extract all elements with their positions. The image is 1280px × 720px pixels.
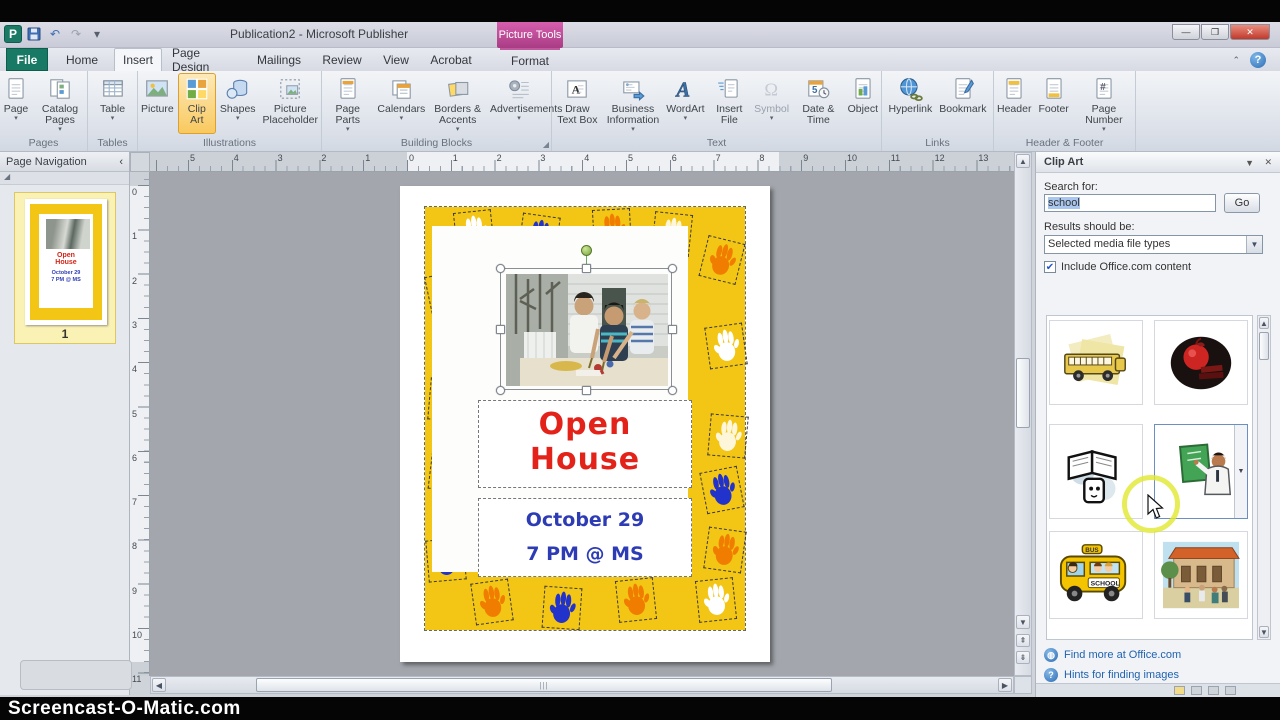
mini-toolbar-icon[interactable] <box>1191 686 1202 695</box>
page1-thumbnail-selected[interactable]: Open House October 29 7 PM @ MS 1 <box>14 192 116 344</box>
ribbon-button-label: Shapes <box>220 104 256 115</box>
mini-toolbar-icon[interactable] <box>1208 686 1219 695</box>
thumbnail-title2: House <box>39 259 93 266</box>
ruler-number: 10 <box>847 153 857 163</box>
date-text-box[interactable]: October 29 7 PM @ MS <box>478 498 692 577</box>
pane-close-icon[interactable]: ✕ <box>1264 157 1272 168</box>
group-label: Building Blocks <box>322 137 551 149</box>
publication-page[interactable]: Open House October 29 7 PM @ MS <box>400 186 770 662</box>
dropdown-arrow-icon: ▾ <box>456 126 460 133</box>
ribbon-button-label: Advertisements <box>490 104 548 115</box>
ribbon-button-catalog-pages[interactable]: Catalog Pages▾ <box>33 73 87 134</box>
title-line1: Open <box>479 407 691 442</box>
title-bar[interactable]: P ↶↷▾ Publication2 - Microsoft Publisher… <box>0 22 1280 48</box>
dropdown-arrow-icon: ▾ <box>14 115 18 122</box>
qat-customize-icon[interactable]: ▾ <box>88 25 106 43</box>
ribbon-button-label: Page Parts <box>325 104 370 126</box>
ruler-number: 9 <box>803 153 808 163</box>
hints-label: Hints for finding images <box>1064 669 1179 681</box>
ribbon-button-shapes[interactable]: Shapes▾ <box>217 73 259 134</box>
ruler-corner-box[interactable] <box>130 152 150 172</box>
dropdown-arrow-icon <box>909 115 911 122</box>
dropdown-arrow-icon: ▾ <box>236 115 240 122</box>
dropdown-arrow-icon <box>1053 115 1055 122</box>
ruler-number: 6 <box>132 453 137 463</box>
thumbnail-border-art: Open House October 29 7 PM @ MS <box>30 204 102 320</box>
thumbnail-date1: October 29 <box>39 270 93 277</box>
apple-books-badge-clipart[interactable] <box>1154 320 1248 405</box>
close-button[interactable]: ✕ <box>1230 24 1270 40</box>
ribbon-button-label: Borders & Accents <box>432 104 483 126</box>
globe-icon: ◍ <box>1044 648 1058 662</box>
hyperlink-icon <box>897 76 923 102</box>
ribbon-button-label: Header <box>997 104 1031 115</box>
selection-handle-se[interactable] <box>668 386 677 395</box>
date-line1: October 29 <box>479 503 691 537</box>
picture-icon <box>144 76 170 102</box>
ruler-number: 1 <box>365 153 370 163</box>
ribbon-button-label: Table <box>100 104 125 115</box>
pane-bottom-strip <box>1036 683 1280 697</box>
ribbon-button-label: Page Number <box>1076 104 1132 126</box>
next-page-icon[interactable]: ⇟ <box>1016 651 1030 664</box>
find-more-label: Find more at Office.com <box>1064 649 1181 661</box>
ribbon-button-label: WordArt <box>666 104 704 115</box>
handprint-stamp <box>707 413 749 458</box>
calendars-icon <box>388 76 414 102</box>
ribbon-button-draw-text-box[interactable]: ADraw Text Box <box>552 73 603 134</box>
handprint-stamp <box>470 579 513 626</box>
search-for-label: Search for: <box>1044 181 1098 193</box>
top-letterbox-bar <box>0 0 1280 22</box>
dropdown-arrow-icon: ▾ <box>111 115 115 122</box>
expand-icon[interactable]: ◢ <box>4 172 10 181</box>
tab-insert[interactable]: Insert <box>114 48 162 71</box>
results-scroll-down-icon[interactable]: ▼ <box>1259 626 1269 638</box>
selection-handle-sw[interactable] <box>496 386 505 395</box>
scroll-left-icon[interactable]: ◀ <box>152 678 166 692</box>
ribbon-button-label: Object <box>848 104 878 115</box>
ruler-number: 3 <box>278 153 283 163</box>
window-controls: — ❐ ✕ <box>1171 24 1270 40</box>
page1-thumbnail[interactable]: Open House October 29 7 PM @ MS <box>25 199 107 325</box>
ribbon-button-bookmark[interactable]: Bookmark <box>936 73 989 123</box>
ribbon-button-label: Draw Text Box <box>555 104 600 126</box>
ribbon-button-table[interactable]: Table▾ <box>97 73 129 123</box>
ruler-number: 10 <box>132 630 142 640</box>
undo-icon[interactable]: ↶ <box>46 25 64 43</box>
dropdown-arrow-icon[interactable]: ▼ <box>1246 236 1262 253</box>
include-office-checkbox-row[interactable]: ✔ Include Office.com content <box>1044 261 1191 273</box>
svg-text:#: # <box>1100 82 1106 93</box>
group-label: Pages <box>0 137 87 149</box>
media-type-dropdown[interactable]: Selected media file types ▼ <box>1044 235 1263 254</box>
date-line2: 7 PM @ MS <box>479 537 691 571</box>
ruler-number: 3 <box>540 153 545 163</box>
ruler-number: 0 <box>409 153 414 163</box>
tab-acrobat[interactable]: Acrobat <box>422 48 480 71</box>
svg-text:BUS: BUS <box>1085 547 1098 554</box>
dropdown-arrow-icon <box>1013 115 1015 122</box>
ruler-number: 2 <box>132 276 137 286</box>
title-text-box[interactable]: Open House <box>478 400 692 488</box>
help-circle-icon: ? <box>1044 668 1058 682</box>
ribbon-button-clip-art[interactable]: Clip Art <box>178 73 216 134</box>
ruler-number: 2 <box>321 153 326 163</box>
tab-page-design[interactable]: Page Design <box>166 48 244 71</box>
ribbon: Page▾Catalog Pages▾PagesTable▾TablesPict… <box>0 71 1280 152</box>
ruler-number: 7 <box>132 497 137 507</box>
ribbon-button-label: Business Information <box>607 104 660 126</box>
selection-handle-w[interactable] <box>496 325 505 334</box>
horizontal-scrollbar[interactable]: ◀ ||| ▶ <box>150 676 1014 694</box>
ruler-number: 8 <box>759 153 764 163</box>
mini-toolbar-icon[interactable] <box>1225 686 1236 695</box>
wordart-icon: A <box>672 76 698 102</box>
minimize-button[interactable]: — <box>1172 24 1200 40</box>
page-navigation-title: Page Navigation <box>6 156 87 168</box>
save-icon[interactable] <box>25 25 43 43</box>
nav-expand-strip[interactable]: ◢ <box>0 172 129 185</box>
dropdown-arrow-icon: ▾ <box>770 115 774 122</box>
school-building-clipart[interactable] <box>1154 531 1248 619</box>
maximize-button[interactable]: ❐ <box>1201 24 1229 40</box>
ribbon-button-object[interactable]: Object <box>845 73 881 134</box>
vertical-scrollbar[interactable]: ▲ ▼ ⇞ ⇟ <box>1014 152 1032 676</box>
ribbon-button-picture-placeholder[interactable]: Picture Placeholder <box>260 73 321 134</box>
group-label: Illustrations <box>138 137 321 149</box>
tab-file[interactable]: File <box>6 48 48 71</box>
previous-page-icon[interactable]: ⇞ <box>1016 634 1030 647</box>
ruler-number: 7 <box>716 153 721 163</box>
placeholder-icon <box>277 76 303 102</box>
footer-icon <box>1041 76 1067 102</box>
ribbon-button-label: Picture <box>141 104 174 115</box>
svg-text:5: 5 <box>812 85 818 96</box>
page-number-label: 1 <box>15 327 115 341</box>
publication-canvas[interactable]: Open House October 29 7 PM @ MS <box>150 172 1014 676</box>
selected-photo-frame[interactable] <box>500 268 672 390</box>
handprint-stamp <box>699 466 744 514</box>
selection-handle-e[interactable] <box>668 325 677 334</box>
thumbnail-inner: Open House October 29 7 PM @ MS <box>39 214 93 308</box>
horizontal-scroll-thumb[interactable]: ||| <box>256 678 832 692</box>
ruler-number: 8 <box>132 541 137 551</box>
tab-review[interactable]: Review <box>314 48 370 71</box>
ruler-number: 1 <box>453 153 458 163</box>
ribbon-button-label: Picture Placeholder <box>263 104 318 126</box>
ribbon-button-calendars[interactable]: Calendars▾ <box>374 73 428 134</box>
mini-toolbar-icon[interactable] <box>1174 686 1185 695</box>
ribbon-button-label: Calendars <box>377 104 425 115</box>
search-value: school <box>1048 197 1080 209</box>
handprint-stamp <box>698 235 745 285</box>
selection-handle-n[interactable] <box>582 264 591 273</box>
ribbon-button-business-information[interactable]: Business Information▾ <box>604 73 663 134</box>
textbox-icon: A <box>564 76 590 102</box>
group-label: Header & Footer <box>994 137 1135 149</box>
dropdown-arrow-icon: ▾ <box>1102 126 1106 133</box>
ribbon-group-tables: Table▾Tables <box>88 71 138 151</box>
picture-tools-contextual-tab: Picture Tools <box>497 22 563 48</box>
dropdown-arrow-icon <box>728 126 730 133</box>
ribbon-button-page-parts[interactable]: Page Parts▾ <box>322 73 373 134</box>
dropdown-arrow-icon: ▾ <box>684 115 688 122</box>
datetime-icon: 5 <box>805 76 831 102</box>
find-more-link[interactable]: ◍ Find more at Office.com <box>1044 648 1181 662</box>
clip-options-arrow-icon[interactable]: ▼ <box>1234 425 1247 518</box>
collapse-pane-icon[interactable]: ‹ <box>119 156 123 168</box>
clipart-icon <box>184 76 210 102</box>
dropdown-arrow-icon <box>156 115 158 122</box>
ribbon-button-label: Hyperlink <box>888 104 932 115</box>
ruler-number: 11 <box>132 674 141 684</box>
dropdown-arrow-icon: ▾ <box>346 126 350 133</box>
redo-icon[interactable]: ↷ <box>67 25 85 43</box>
vertical-ruler[interactable]: 01234567891011 <box>130 172 150 676</box>
ruler-number: 4 <box>132 364 137 374</box>
ruler-number: 5 <box>628 153 633 163</box>
borders-icon <box>445 76 471 102</box>
handprint-stamp <box>615 577 657 623</box>
thumbnail-date2: 7 PM @ MS <box>39 277 93 284</box>
tab-mailings[interactable]: Mailings <box>248 48 310 71</box>
ribbon-button-label: Symbol <box>754 104 789 115</box>
school-bus-side-clipart[interactable] <box>1049 320 1143 405</box>
bizinfo-icon <box>620 76 646 102</box>
quick-access-toolbar: P ↶↷▾ <box>4 25 106 43</box>
media-type-value: Selected media file types <box>1048 238 1170 250</box>
catalog-icon <box>47 76 73 102</box>
title-line2: House <box>479 442 691 477</box>
rotate-handle[interactable] <box>581 245 592 256</box>
dropdown-arrow-icon <box>196 126 198 133</box>
ruler-number: 2 <box>497 153 502 163</box>
svg-text:SCHOOL: SCHOOL <box>1091 581 1120 588</box>
ribbon-button-page-number[interactable]: #Page Number▾ <box>1073 73 1135 134</box>
scroll-right-icon[interactable]: ▶ <box>998 678 1012 692</box>
dropdown-arrow-icon <box>962 115 964 122</box>
ruler-number: 0 <box>132 187 137 197</box>
ribbon-group-text: ADraw Text Box Business Information▾AWor… <box>552 71 882 151</box>
children-painting-photo[interactable] <box>506 274 668 386</box>
ribbon-group-links: Hyperlink Bookmark Links <box>882 71 994 151</box>
watermark-bar: Screencast-O-Matic.com <box>0 697 1280 720</box>
ruler-number: 12 <box>935 153 945 163</box>
ribbon-button-label: Bookmark <box>939 104 986 115</box>
selection-handle-ne[interactable] <box>668 264 677 273</box>
group-label: Text <box>552 137 881 149</box>
dropdown-arrow-icon <box>576 126 578 133</box>
handprint-stamp <box>695 577 737 623</box>
symbol-icon: Ω <box>759 76 785 102</box>
mouse-cursor <box>1146 494 1164 525</box>
ribbon-button-header[interactable]: Header <box>994 73 1034 134</box>
pane-menu-icon[interactable]: ▼ <box>1245 158 1254 168</box>
pageparts-icon <box>335 76 361 102</box>
cartoon-school-bus-clipart[interactable]: BUSSCHOOL <box>1049 531 1143 619</box>
ads-icon <box>506 76 532 102</box>
table-icon <box>100 76 126 102</box>
object-icon <box>850 76 876 102</box>
scrollbar-corner <box>1014 676 1032 694</box>
thumbnail-title1: Open <box>39 252 93 259</box>
pagenum-icon: # <box>1091 76 1117 102</box>
hints-link[interactable]: ? Hints for finding images <box>1044 668 1179 682</box>
dropdown-arrow-icon: ▾ <box>517 115 521 122</box>
clip-art-pane-header[interactable]: Clip Art ▼ ✕ <box>1036 152 1280 173</box>
ribbon-group-pages: Page▾Catalog Pages▾Pages <box>0 71 88 151</box>
go-button[interactable]: Go <box>1224 193 1260 213</box>
ruler-number: 11 <box>891 153 900 163</box>
handprint-stamp <box>703 527 746 574</box>
ribbon-button-label: Insert File <box>712 104 748 126</box>
ruler-number: 6 <box>672 153 677 163</box>
search-input[interactable]: school <box>1044 194 1216 212</box>
tab-format[interactable]: Format <box>500 48 560 71</box>
publisher-window: Open House October 29 7 PM @ MS 54321012… <box>0 0 1280 720</box>
ribbon-button-hyperlink[interactable]: Hyperlink <box>885 73 935 123</box>
handprint-stamp <box>542 586 583 631</box>
selection-handle-nw[interactable] <box>496 264 505 273</box>
dropdown-arrow-icon: ▾ <box>400 115 404 122</box>
dropdown-arrow-icon <box>289 126 291 133</box>
ruler-number: 3 <box>132 320 137 330</box>
ribbon-button-label: Date & Time <box>796 104 841 126</box>
results-scroll-thumb[interactable] <box>1259 332 1269 360</box>
svg-text:Ω: Ω <box>764 80 778 100</box>
watermark-text: Screencast-O-Matic.com <box>0 698 241 720</box>
ribbon-button-advertisements[interactable]: Advertisements▾ <box>487 73 551 134</box>
dropdown-arrow-icon <box>817 126 819 133</box>
page-icon <box>3 76 29 102</box>
ribbon-button-footer[interactable]: Footer <box>1035 73 1071 134</box>
ribbon-button-wordart[interactable]: AWordArt▾ <box>663 73 707 134</box>
ribbon-button-date-time[interactable]: 5Date & Time <box>793 73 844 134</box>
insertfile-icon <box>716 76 742 102</box>
ruler-number: 4 <box>584 153 589 163</box>
group-label: Tables <box>88 137 137 149</box>
ribbon-button-symbol[interactable]: ΩSymbol▾ <box>751 73 792 134</box>
ribbon-button-label: Clip Art <box>181 104 213 126</box>
ribbon-tab-row: FileHomeInsertPage DesignMailingsReviewV… <box>0 48 1280 71</box>
dropdown-arrow-icon: ▾ <box>631 126 635 133</box>
shapes-icon <box>225 76 251 102</box>
dropdown-arrow-icon: ▾ <box>58 126 62 133</box>
ribbon-button-insert-file[interactable]: Insert File <box>709 73 751 134</box>
ruler-number: 4 <box>234 153 239 163</box>
clip-art-pane-title: Clip Art <box>1044 156 1083 168</box>
status-flyout-box <box>20 660 132 690</box>
results-scroll-up-icon[interactable]: ▲ <box>1259 317 1269 329</box>
ruler-number: 5 <box>190 153 195 163</box>
checkbox-checked-icon[interactable]: ✔ <box>1044 261 1056 273</box>
page-navigation-pane: Page Navigation ‹ ◢ Open House October 2… <box>0 152 130 695</box>
tab-home[interactable]: Home <box>54 48 110 71</box>
ribbon-button-picture[interactable]: Picture <box>138 73 177 134</box>
tab-view[interactable]: View <box>374 48 418 71</box>
results-scrollbar[interactable]: ▲ ▼ <box>1257 315 1271 640</box>
header-icon <box>1001 76 1027 102</box>
handprint-stamp <box>704 323 747 370</box>
ribbon-button-label: Page <box>4 104 29 115</box>
horizontal-ruler[interactable]: 5432101234567891011121314 <box>150 152 1014 172</box>
window-title: Publication2 - Microsoft Publisher <box>230 27 408 41</box>
results-should-be-label: Results should be: <box>1044 221 1135 233</box>
dialog-launcher-icon[interactable]: ◢ <box>543 140 549 149</box>
ruler-number: 5 <box>132 409 137 419</box>
bookmark-icon <box>950 76 976 102</box>
ribbon-group-illustrations: Picture Clip Art Shapes▾Picture Placehol… <box>138 71 322 151</box>
include-office-label: Include Office.com content <box>1061 261 1191 273</box>
dropdown-arrow-icon <box>862 115 864 122</box>
clip-art-task-pane: Clip Art ▼ ✕ Search for: school Go Resul… <box>1035 152 1280 697</box>
ribbon-button-label: Catalog Pages <box>36 104 84 126</box>
ribbon-group-header-footer: Header Footer #Page Number▾Header & Foot… <box>994 71 1136 151</box>
ribbon-button-page[interactable]: Page▾ <box>0 73 32 134</box>
vertical-scroll-thumb[interactable] <box>1016 358 1030 428</box>
help-icon[interactable]: ? <box>1250 52 1266 68</box>
group-label: Links <box>882 137 993 149</box>
ruler-number: 1 <box>132 231 137 241</box>
svg-text:A: A <box>675 80 691 102</box>
ruler-number: 13 <box>978 153 988 163</box>
ruler-number: 9 <box>132 586 137 596</box>
ribbon-button-label: Footer <box>1038 104 1068 115</box>
scroll-up-icon[interactable]: ▲ <box>1016 154 1030 168</box>
ribbon-group-building-blocks: Page Parts▾Calendars▾Borders & Accents▾A… <box>322 71 552 151</box>
scroll-down-icon[interactable]: ▼ <box>1016 615 1030 629</box>
ribbon-button-borders-accents[interactable]: Borders & Accents▾ <box>429 73 486 134</box>
thumbnail-photo <box>46 219 90 249</box>
selection-handle-s[interactable] <box>582 386 591 395</box>
minimize-ribbon-icon[interactable]: ⌃ <box>1232 55 1240 66</box>
publisher-app-icon[interactable]: P <box>4 25 22 43</box>
